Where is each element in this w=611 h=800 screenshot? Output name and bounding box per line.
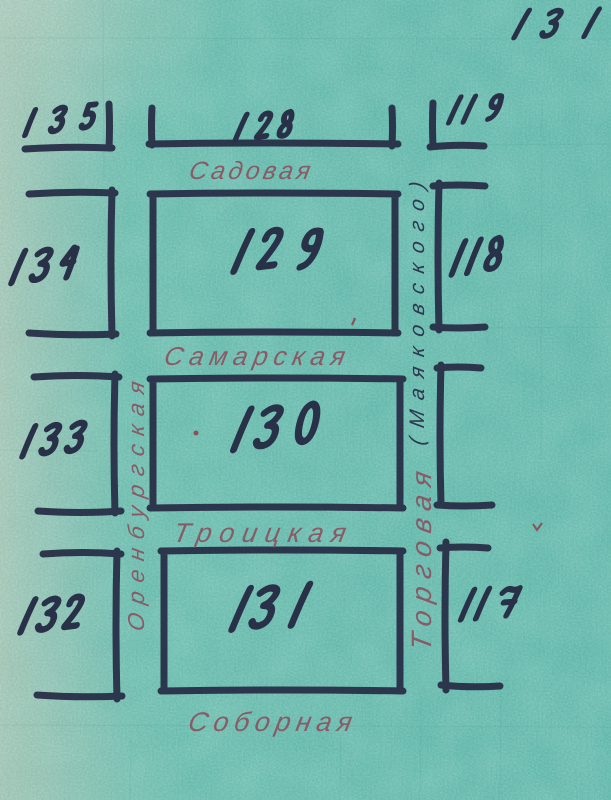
svg-text:Самарская: Самарская: [162, 341, 354, 371]
svg-text:Садовая: Садовая: [187, 157, 317, 185]
svg-text:Соборная: Соборная: [186, 706, 361, 737]
svg-text:Торговая: Торговая: [405, 460, 437, 653]
svg-text:(Маяковского): (Маяковского): [406, 170, 429, 447]
svg-text:Троицкая: Троицкая: [171, 517, 357, 548]
svg-text:Оренбургская: Оренбургская: [123, 370, 149, 633]
